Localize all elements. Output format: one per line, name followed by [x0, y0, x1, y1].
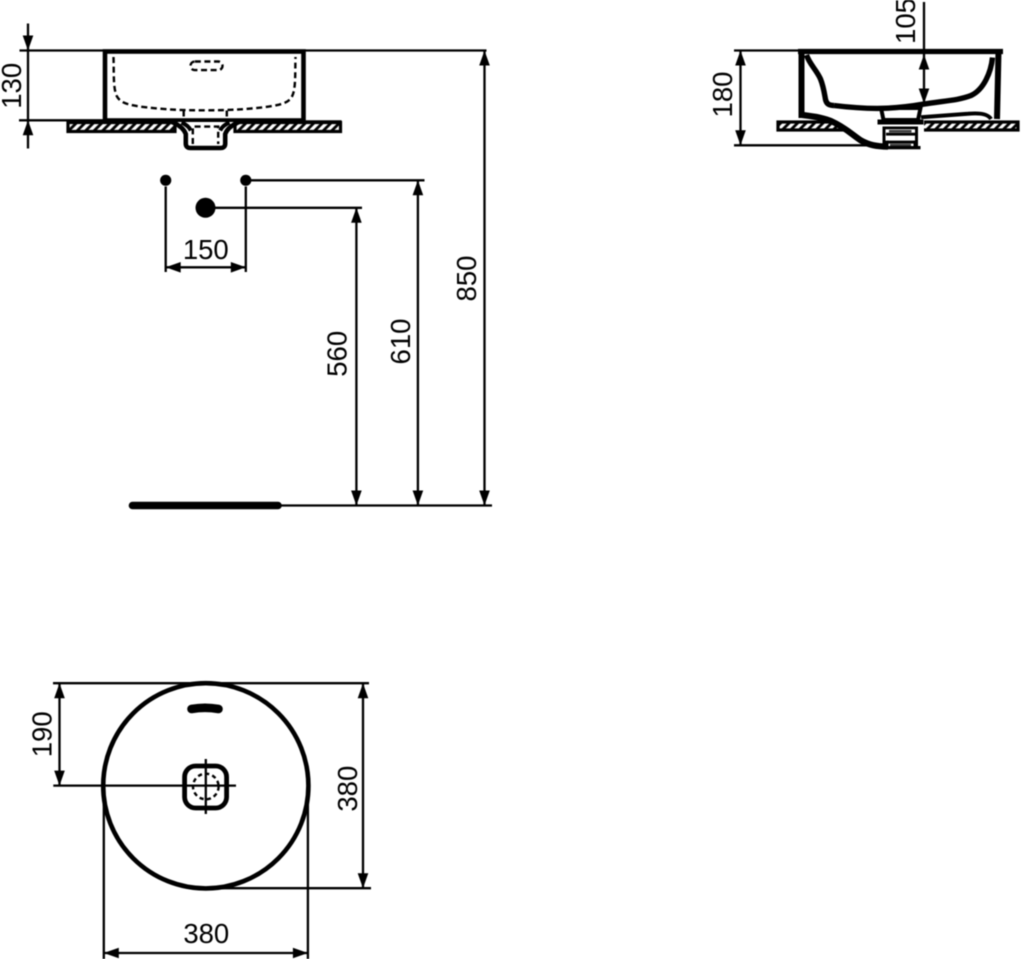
svg-text:105: 105 [890, 0, 921, 44]
svg-text:850: 850 [451, 256, 482, 302]
svg-text:130: 130 [0, 63, 27, 109]
svg-text:150: 150 [183, 234, 229, 265]
svg-text:180: 180 [707, 72, 738, 118]
svg-text:560: 560 [321, 331, 352, 377]
svg-text:380: 380 [332, 766, 363, 812]
svg-text:380: 380 [183, 918, 229, 949]
svg-text:610: 610 [385, 319, 416, 365]
svg-text:190: 190 [26, 711, 57, 757]
